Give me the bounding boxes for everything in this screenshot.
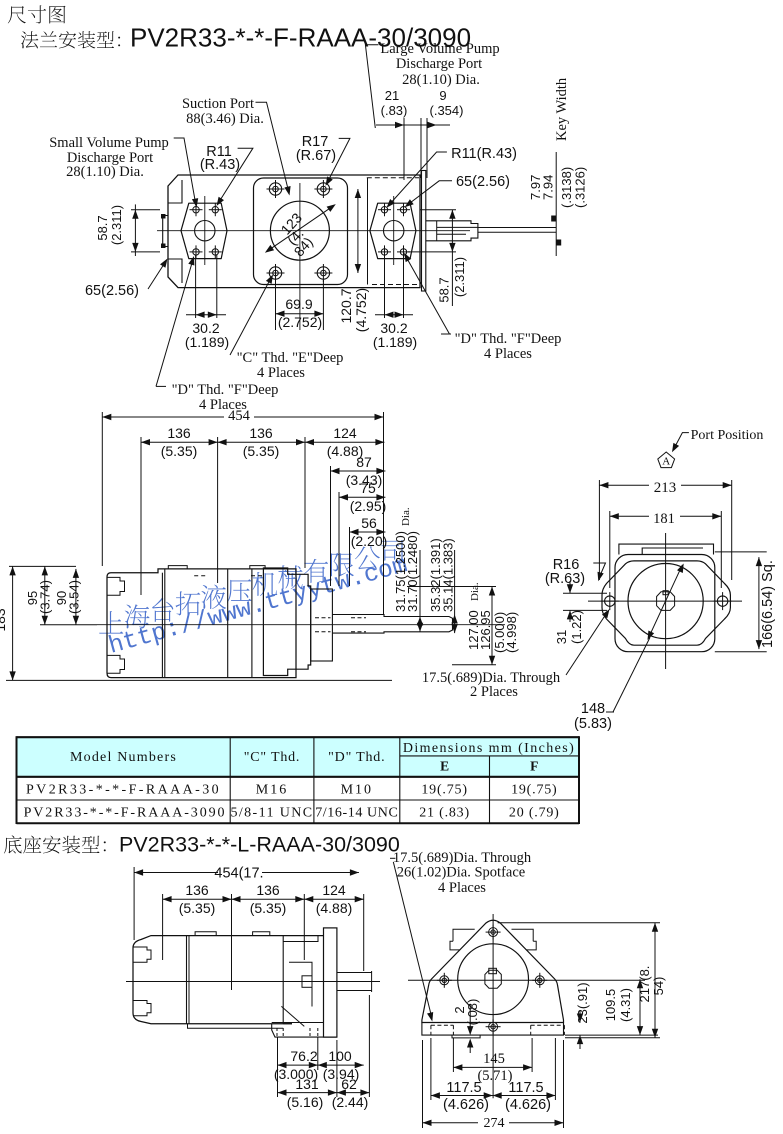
svg-text:217(8.: 217(8. bbox=[637, 966, 652, 1003]
svg-text:Dia.: Dia. bbox=[400, 507, 412, 526]
svg-text:(.354): (.354) bbox=[430, 103, 464, 118]
svg-text:136: 136 bbox=[167, 425, 191, 441]
svg-text:76.2: 76.2 bbox=[290, 1048, 317, 1064]
svg-text:9: 9 bbox=[439, 88, 446, 103]
svg-text:(1.22): (1.22) bbox=[569, 610, 584, 644]
svg-text:(5.35): (5.35) bbox=[243, 443, 280, 459]
svg-text:454: 454 bbox=[228, 408, 251, 424]
svg-text:148: 148 bbox=[581, 701, 605, 717]
svg-text:(.08): (.08) bbox=[465, 999, 480, 1026]
svg-text:23(.91): 23(.91) bbox=[575, 982, 590, 1023]
svg-text:(5.35): (5.35) bbox=[179, 900, 216, 916]
svg-text:(3.74): (3.74) bbox=[38, 580, 53, 614]
svg-text:Key Width: Key Width bbox=[554, 77, 570, 141]
svg-text:(2.95): (2.95) bbox=[350, 498, 387, 514]
svg-text:PV2R33-*-*-F-RAAA-30: PV2R33-*-*-F-RAAA-30 bbox=[26, 783, 221, 798]
svg-text:2 Places: 2 Places bbox=[470, 684, 518, 700]
svg-text:PV2R33-*-*-L-RAAA-30/3090: PV2R33-*-*-L-RAAA-30/3090 bbox=[119, 833, 400, 857]
svg-text:(.83): (.83) bbox=[381, 103, 408, 118]
svg-text:31: 31 bbox=[554, 630, 569, 644]
svg-text:(R.43): (R.43) bbox=[200, 157, 240, 173]
svg-text:F: F bbox=[530, 759, 538, 774]
svg-text:Suction Port: Suction Port bbox=[182, 96, 254, 112]
svg-text:(4.752): (4.752) bbox=[353, 288, 369, 332]
svg-text:87: 87 bbox=[356, 454, 372, 470]
svg-text:(2.44): (2.44) bbox=[332, 1094, 369, 1110]
svg-text:(2.752): (2.752) bbox=[278, 314, 322, 330]
svg-text:58.7: 58.7 bbox=[95, 215, 110, 240]
svg-text:"D" Thd. "F"Deep: "D" Thd. "F"Deep bbox=[455, 331, 562, 347]
svg-text:(2.311): (2.311) bbox=[109, 205, 124, 245]
svg-text:(4.626): (4.626) bbox=[443, 1097, 489, 1113]
svg-text:"D" Thd. "F"Deep: "D" Thd. "F"Deep bbox=[172, 382, 279, 398]
svg-text:69.9: 69.9 bbox=[285, 296, 312, 312]
svg-text:(R.67): (R.67) bbox=[296, 148, 336, 164]
svg-text:(4.998): (4.998) bbox=[504, 612, 519, 653]
svg-text:(2.311): (2.311) bbox=[452, 257, 467, 297]
svg-text:(2.20): (2.20) bbox=[351, 533, 388, 549]
svg-text:R11(R.43): R11(R.43) bbox=[451, 146, 517, 162]
svg-text:7/16-14 UNC: 7/16-14 UNC bbox=[315, 806, 398, 821]
svg-text:M16: M16 bbox=[256, 783, 288, 798]
svg-text:124: 124 bbox=[333, 425, 357, 441]
svg-text:454(17.: 454(17. bbox=[214, 866, 263, 882]
svg-text:"C" Thd.: "C" Thd. bbox=[244, 750, 300, 765]
svg-text:(5.71): (5.71) bbox=[477, 1068, 512, 1084]
svg-text:31.70(1.2480): 31.70(1.2480) bbox=[405, 531, 420, 612]
svg-text:(1.189): (1.189) bbox=[373, 334, 417, 350]
svg-text:62: 62 bbox=[341, 1076, 357, 1092]
svg-text:75: 75 bbox=[360, 480, 376, 496]
svg-text:Port Position: Port Position bbox=[691, 428, 764, 443]
svg-text:35.14(1.383): 35.14(1.383) bbox=[441, 538, 456, 612]
svg-text:M10: M10 bbox=[341, 783, 373, 798]
svg-text:(.3126): (.3126) bbox=[573, 167, 588, 208]
svg-text:181: 181 bbox=[653, 511, 675, 527]
svg-text:58.7: 58.7 bbox=[437, 277, 452, 302]
svg-text:(5.35): (5.35) bbox=[250, 900, 287, 916]
svg-text:"C" Thd. "E"Deep: "C" Thd. "E"Deep bbox=[237, 350, 344, 366]
svg-text:7.94: 7.94 bbox=[541, 175, 556, 200]
svg-text:26(1.02)Dia. Spotface: 26(1.02)Dia. Spotface bbox=[397, 865, 525, 881]
svg-text:Small Volume Pump: Small Volume Pump bbox=[49, 135, 169, 151]
svg-text:(5.83): (5.83) bbox=[574, 716, 612, 732]
svg-text:5/8-11 UNC: 5/8-11 UNC bbox=[230, 806, 313, 821]
svg-text:Large Volume Pump: Large Volume Pump bbox=[380, 41, 499, 57]
svg-text:(5.35): (5.35) bbox=[161, 443, 198, 459]
svg-text:88(3.46) Dia.: 88(3.46) Dia. bbox=[186, 111, 264, 127]
svg-text:(4.31): (4.31) bbox=[618, 988, 633, 1022]
svg-text:(3.54): (3.54) bbox=[67, 580, 82, 614]
svg-text:65(2.56): 65(2.56) bbox=[85, 283, 139, 299]
svg-text:A: A bbox=[662, 456, 670, 468]
svg-text:136: 136 bbox=[185, 882, 209, 898]
svg-text:(1.189): (1.189) bbox=[185, 334, 229, 350]
svg-text:Discharge Port: Discharge Port bbox=[396, 56, 482, 72]
svg-text:145: 145 bbox=[483, 1051, 505, 1067]
svg-text:(4.88): (4.88) bbox=[316, 900, 353, 916]
svg-text:"D" Thd.: "D" Thd. bbox=[328, 750, 385, 765]
svg-text:166(6.54) Sq.: 166(6.54) Sq. bbox=[760, 560, 776, 648]
svg-text:Dia.: Dia. bbox=[469, 582, 481, 601]
svg-text:4 Places: 4 Places bbox=[438, 880, 486, 896]
svg-text:Dimensions mm (Inches): Dimensions mm (Inches) bbox=[403, 741, 575, 756]
svg-text:126.95: 126.95 bbox=[478, 610, 493, 650]
svg-text:(4.626): (4.626) bbox=[505, 1097, 551, 1113]
svg-text:19(.75): 19(.75) bbox=[421, 783, 467, 798]
svg-text:20 (.79): 20 (.79) bbox=[509, 806, 560, 821]
svg-text:28(1.10) Dia.: 28(1.10) Dia. bbox=[66, 164, 144, 180]
svg-text:4 Places: 4 Places bbox=[257, 365, 305, 381]
svg-text:54): 54) bbox=[651, 977, 666, 996]
svg-text:109.5: 109.5 bbox=[603, 989, 618, 1022]
svg-text:124: 124 bbox=[322, 882, 346, 898]
svg-text:21 (.83): 21 (.83) bbox=[419, 806, 470, 821]
svg-text:56: 56 bbox=[361, 515, 377, 531]
svg-text:183: 183 bbox=[0, 608, 8, 632]
svg-text:4 Places: 4 Places bbox=[484, 346, 532, 362]
svg-text:19(.75): 19(.75) bbox=[511, 783, 557, 798]
svg-text:213: 213 bbox=[654, 480, 677, 496]
svg-text:(5.16): (5.16) bbox=[287, 1094, 324, 1110]
svg-text:(R.63): (R.63) bbox=[545, 571, 585, 587]
svg-text:65(2.56): 65(2.56) bbox=[456, 174, 510, 190]
svg-text:136: 136 bbox=[256, 882, 280, 898]
svg-text:117.5: 117.5 bbox=[508, 1080, 543, 1096]
svg-text:120.7: 120.7 bbox=[338, 288, 354, 323]
svg-text:117.5: 117.5 bbox=[446, 1080, 481, 1096]
svg-text:Model Numbers: Model Numbers bbox=[70, 750, 177, 765]
svg-text:PV2R33-*-*-F-RAAA-3090: PV2R33-*-*-F-RAAA-3090 bbox=[24, 806, 227, 821]
svg-text:E: E bbox=[440, 759, 449, 774]
svg-text:28(1.10) Dia.: 28(1.10) Dia. bbox=[402, 72, 480, 88]
svg-text:100: 100 bbox=[328, 1048, 352, 1064]
svg-text:131: 131 bbox=[295, 1076, 319, 1092]
svg-text:136: 136 bbox=[249, 425, 273, 441]
svg-text:274: 274 bbox=[484, 1116, 505, 1131]
svg-text:21: 21 bbox=[385, 88, 399, 103]
